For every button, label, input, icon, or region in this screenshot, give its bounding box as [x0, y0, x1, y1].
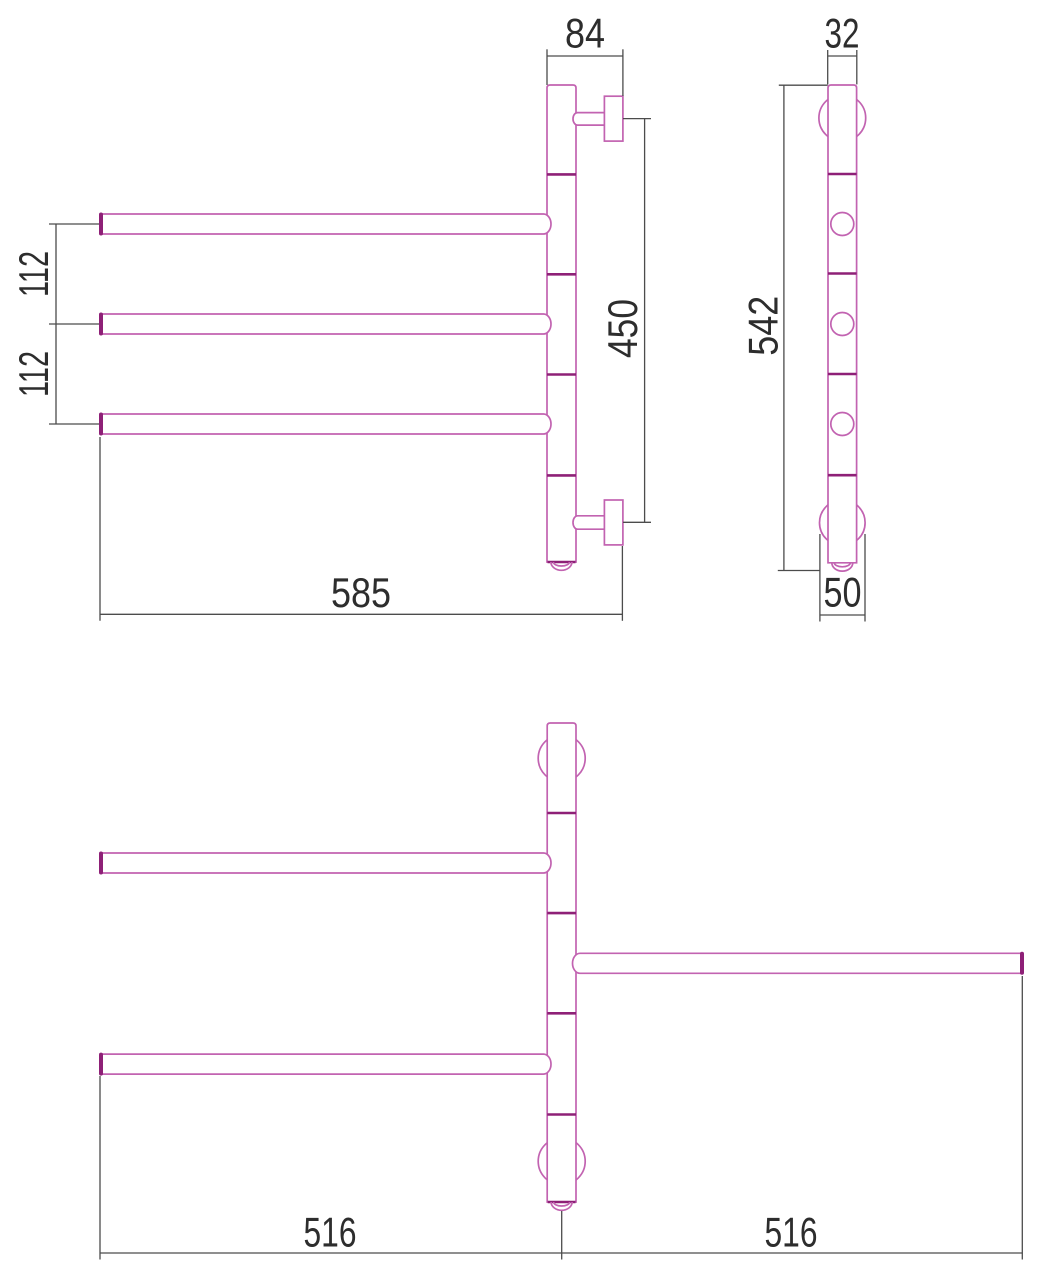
- svg-text:112: 112: [10, 251, 57, 297]
- svg-text:50: 50: [824, 569, 862, 616]
- svg-text:516: 516: [765, 1209, 818, 1256]
- svg-text:450: 450: [599, 299, 646, 358]
- svg-text:84: 84: [565, 9, 605, 56]
- svg-text:516: 516: [304, 1209, 357, 1256]
- svg-text:112: 112: [10, 351, 57, 397]
- svg-text:585: 585: [331, 569, 391, 616]
- svg-text:542: 542: [740, 296, 787, 356]
- svg-text:32: 32: [825, 10, 860, 57]
